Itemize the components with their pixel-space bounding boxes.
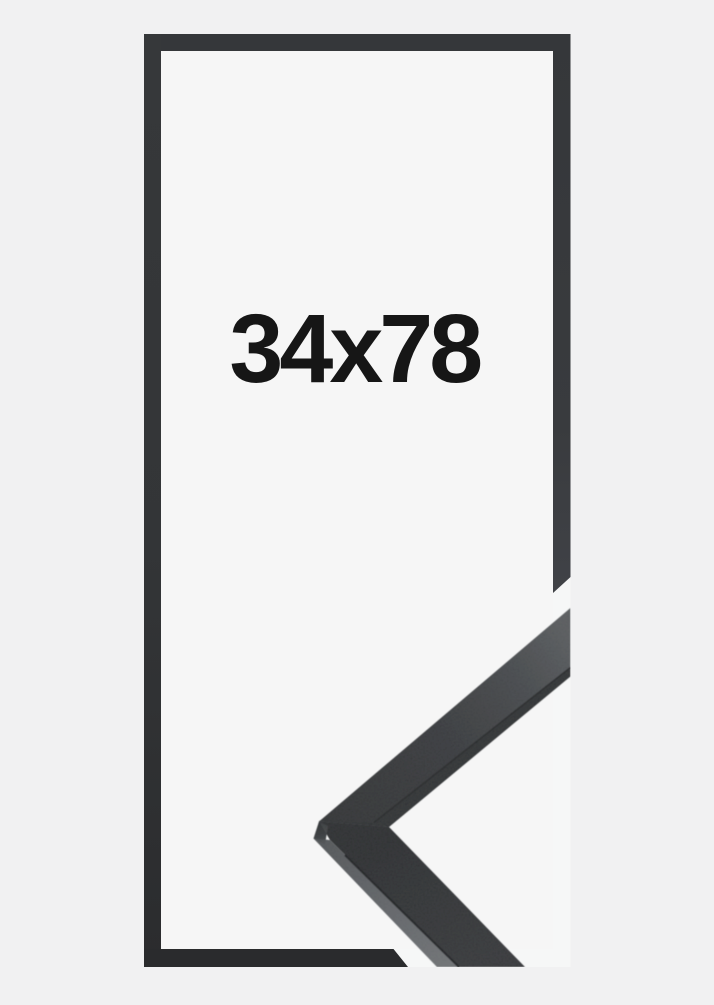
svg-text:34x78: 34x78: [229, 294, 480, 403]
